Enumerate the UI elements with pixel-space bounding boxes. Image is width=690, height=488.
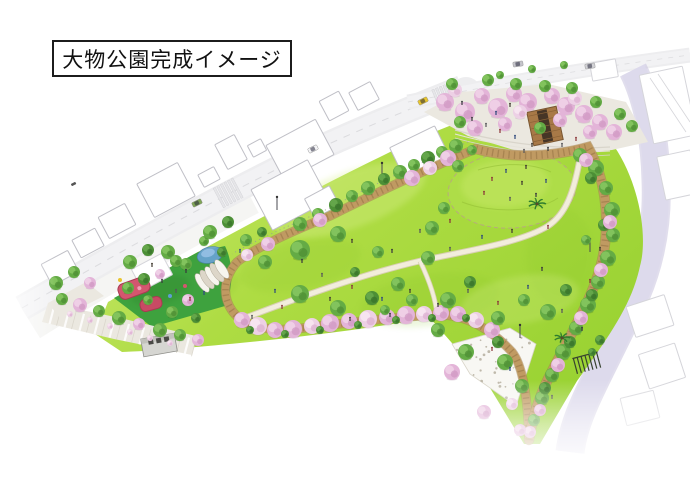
tree-crown-dark [443, 207, 448, 212]
tree-crown-dark [562, 350, 569, 357]
tree-crown-dark [274, 328, 281, 335]
tree-crown-dark [118, 317, 124, 323]
tree-crown-dark [395, 319, 399, 323]
speckle-dot [483, 353, 486, 356]
tree-crown-dark [504, 360, 511, 367]
tree-crown-dark [471, 149, 476, 154]
tree-crown-dark [261, 231, 266, 236]
tree-crown-dark [284, 333, 288, 337]
tree-crown-dark [384, 309, 389, 314]
tree-crown-dark [351, 195, 356, 200]
tree-crown-dark [569, 341, 574, 346]
tree-crown-dark [597, 281, 603, 287]
tree-crown-dark [595, 166, 602, 173]
tree-crown-dark [129, 261, 135, 267]
speckle-dot [493, 371, 496, 374]
tree-crown-dark [589, 131, 595, 137]
person-body [545, 180, 546, 183]
tree-crown-dark [551, 94, 558, 101]
tree-crown-dark [55, 282, 61, 288]
person-body [349, 318, 350, 321]
tree-crown-dark [427, 257, 433, 263]
person-body [467, 290, 468, 293]
building [349, 82, 380, 111]
tree-crown-dark [329, 321, 337, 329]
tree-crown-dark [319, 329, 323, 333]
speckle-dot [487, 350, 490, 353]
tree-crown-dark [580, 317, 586, 323]
speckle-dot [485, 346, 487, 348]
tree-crown-dark [257, 324, 265, 332]
tree-crown-dark [565, 104, 573, 112]
building [247, 139, 266, 158]
tree-crown-dark [599, 339, 604, 344]
person-body [527, 286, 528, 289]
tree-crown-dark [595, 101, 600, 106]
tree-crown-dark [367, 317, 375, 325]
tree-crown-dark [465, 317, 469, 321]
tree-crown-dark [455, 145, 461, 151]
person-body [471, 118, 472, 121]
person-body [561, 144, 562, 147]
person-body [189, 298, 190, 301]
left-fade [0, 230, 55, 400]
speckle-dot [452, 347, 453, 348]
person-body [499, 130, 500, 133]
tree-crown-dark [90, 319, 93, 322]
tree-crown-dark [475, 318, 482, 325]
speckle-dot [479, 369, 481, 371]
tree-crown-dark [487, 79, 492, 84]
person-body [521, 182, 522, 185]
tree-crown-dark [583, 112, 591, 120]
car [513, 61, 524, 67]
tree-crown-dark [299, 248, 308, 257]
person-body [509, 104, 510, 107]
tree-crown-dark [429, 167, 435, 173]
speckle-dot [473, 374, 475, 376]
tree-crown-dark [185, 263, 190, 268]
person-body [449, 220, 450, 223]
person-body [449, 248, 450, 251]
tree-crown-dark [519, 111, 525, 117]
tree-crown-dark [457, 165, 462, 170]
tree-crown-dark [465, 350, 472, 357]
person-body [351, 240, 352, 243]
tree-crown-dark [451, 370, 458, 377]
tree-crown-dark [383, 178, 388, 183]
tree-crown-dark [367, 187, 373, 193]
person-body [185, 270, 186, 273]
tree-crown-dark [147, 299, 152, 304]
person-body [511, 230, 512, 233]
tree-crown-dark [515, 83, 520, 88]
tree-crown-dark [469, 281, 474, 286]
tree-crown-dark [143, 278, 148, 283]
tree-crown-dark [585, 159, 591, 165]
person-body [491, 178, 492, 181]
tree-crown-dark [563, 64, 567, 68]
tree-crown-dark [619, 113, 624, 118]
person-body [561, 310, 562, 313]
tree-crown-dark [440, 311, 447, 318]
tree-crown-dark [605, 187, 611, 193]
tree-crown-dark [159, 329, 165, 335]
person-body [151, 264, 152, 267]
tree-crown-dark [631, 125, 636, 130]
tree-crown-dark [61, 298, 66, 303]
tree-crown-dark [267, 243, 273, 249]
person-body [481, 236, 482, 239]
person-body [509, 198, 510, 201]
tree-crown-dark [73, 271, 78, 276]
person-body [329, 298, 330, 301]
palm-trunk [536, 203, 539, 206]
tree-crown-dark [491, 328, 498, 335]
tree-crown-dark [150, 337, 153, 340]
tree-crown-dark [565, 289, 570, 294]
tree-crown-dark [497, 317, 503, 323]
tree-crown-dark [337, 232, 344, 239]
speckle-dot [495, 361, 497, 363]
person-body [161, 280, 162, 283]
tree-crown-dark [98, 310, 103, 315]
tree-crown-dark [431, 317, 435, 321]
person-body [575, 138, 576, 141]
tree-crown-dark [611, 208, 618, 215]
speckle-dot [528, 342, 531, 345]
tree-crown-dark [600, 269, 606, 275]
tree-crown-dark [431, 227, 437, 233]
person-body [535, 194, 536, 197]
person-body [351, 286, 352, 289]
speckle-dot [480, 339, 482, 341]
tree-crown-dark [130, 331, 133, 334]
tree-crown-dark [79, 304, 85, 310]
person-body [483, 192, 484, 195]
tree-crown-dark [607, 256, 614, 263]
tree-crown-dark [371, 297, 377, 303]
car-cabin [515, 62, 520, 67]
tree-crown-dark [249, 329, 253, 333]
tree-crown-dark [481, 94, 488, 101]
person-body [461, 102, 462, 105]
bottom-fade [0, 380, 690, 488]
person-body [485, 124, 486, 127]
tree-crown-dark [167, 251, 173, 257]
tree-crown-dark [547, 310, 554, 317]
tree-crown-dark [575, 327, 581, 333]
park-rendering-page: 大物公園完成イメージ [0, 0, 690, 488]
tree-crown-dark [591, 294, 596, 299]
tree-crown-dark [531, 68, 535, 72]
tree-crown-dark [197, 339, 202, 344]
speckle-dot [475, 356, 477, 358]
tree-crown-dark [411, 176, 418, 183]
tree [431, 323, 445, 337]
tree-crown-dark [591, 351, 595, 355]
title-box: 大物公園完成イメージ [52, 40, 292, 77]
tree-crown-dark [599, 120, 606, 127]
tree-crown-dark [227, 221, 232, 226]
scooter [71, 182, 77, 186]
lamp-head [519, 324, 521, 326]
tree-crown-dark [474, 126, 481, 133]
person-body [495, 112, 496, 115]
speckle-dot [458, 360, 459, 361]
tree-crown-dark [70, 313, 73, 316]
tree-crown-dark [574, 97, 580, 103]
play-item [183, 284, 187, 288]
tree-crown-dark [397, 283, 403, 289]
tree-crown-dark [613, 130, 620, 137]
tree-crown-dark [348, 319, 355, 326]
tree-crown-dark [413, 164, 418, 169]
tree-crown-dark [245, 239, 250, 244]
tree-crown-dark [170, 342, 173, 345]
person-body [419, 230, 420, 233]
tree-crown-dark [159, 273, 164, 278]
tree-crown-dark [585, 239, 590, 244]
person-body [541, 268, 542, 271]
person-body [437, 304, 438, 307]
play-item [118, 278, 122, 282]
tree-crown-dark [246, 254, 251, 259]
tree-crown-dark [587, 303, 594, 310]
tree-crown-dark [147, 249, 152, 254]
tree-crown-dark [203, 240, 208, 245]
building [319, 91, 349, 121]
tree-crown-dark [551, 374, 557, 380]
tree-crown-dark [459, 121, 464, 126]
person-body [301, 260, 302, 263]
tree-crown-dark [89, 282, 94, 287]
tree-crown-dark [557, 364, 563, 370]
tree-crown-dark [437, 329, 443, 335]
person-body [523, 150, 524, 153]
tree-crown-dark [497, 106, 506, 115]
tree-crown-dark [319, 219, 325, 225]
person-body [491, 348, 492, 351]
building [198, 167, 220, 188]
person-body [381, 298, 382, 301]
person-body [281, 306, 282, 309]
tree-crown-dark [110, 325, 113, 328]
tree-crown-dark [612, 234, 618, 240]
tree-crown-dark [127, 287, 132, 292]
speckle-dot [520, 337, 522, 339]
person-body [203, 292, 204, 295]
tree-crown-dark [299, 223, 305, 229]
tree-crown-dark [264, 261, 270, 267]
speckle-dot [456, 349, 458, 351]
speckle-dot [521, 346, 523, 348]
speckle-dot [479, 358, 482, 361]
title-text: 大物公園完成イメージ [62, 44, 282, 74]
tree-crown-dark [179, 334, 184, 339]
person-body [321, 274, 322, 277]
tree-crown-dark [411, 299, 416, 304]
person-body [175, 290, 176, 293]
building [590, 59, 619, 81]
person-body [599, 248, 600, 251]
tree-crown-dark [513, 92, 520, 99]
tree-crown-dark [377, 251, 382, 256]
person-body [497, 302, 498, 305]
person-body [581, 328, 582, 331]
person-body [391, 250, 392, 253]
speckle-dot [513, 367, 514, 368]
person-body [409, 290, 410, 293]
tree-crown-dark [609, 221, 615, 227]
tree-crown-dark [539, 127, 544, 132]
car-cabin [587, 64, 592, 69]
tree-crown-dark [299, 292, 307, 300]
tree-crown-dark [559, 119, 565, 125]
person-body [239, 250, 240, 253]
tree-crown-dark [504, 123, 510, 129]
lamp-head [276, 196, 278, 198]
tree-crown-dark [444, 100, 452, 108]
tree-crown-dark [527, 100, 535, 108]
tree-crown-dark [544, 85, 549, 90]
tree-crown-dark [209, 231, 215, 237]
person-body [389, 314, 390, 317]
play-item [168, 294, 172, 298]
lamp-head [381, 162, 383, 164]
person-body [514, 136, 515, 139]
tree-crown-dark [523, 299, 528, 304]
tree-crown-dark [451, 83, 456, 88]
tree-crown-dark [354, 271, 359, 276]
person-body [505, 170, 506, 173]
restroom-window [156, 338, 162, 344]
person-body [251, 316, 252, 319]
tree-crown-dark [175, 260, 180, 265]
person-body [547, 148, 548, 151]
tree-crown-dark [405, 313, 413, 321]
tree-crown-dark [337, 306, 344, 313]
person-body [274, 290, 275, 293]
tree-crown-dark [221, 251, 226, 256]
tree-crown-dark [357, 324, 361, 328]
tree-crown-dark [171, 311, 176, 316]
tree-crown-dark [447, 156, 454, 163]
tree-crown-dark [590, 177, 595, 182]
tree-crown-dark [571, 87, 576, 92]
tree-crown-dark [241, 318, 248, 325]
building [215, 134, 248, 169]
tree-crown-dark [497, 341, 502, 346]
palm-trunk [561, 337, 564, 340]
tree-crown-dark [447, 298, 454, 305]
person-body [531, 144, 532, 147]
tree-crown-dark [195, 317, 200, 322]
person-body [589, 280, 590, 283]
tree-crown-dark [499, 74, 503, 78]
tree-crown-dark [292, 327, 300, 335]
speckle-dot [495, 367, 497, 369]
cherry-tree [444, 364, 460, 381]
person-body [547, 226, 548, 229]
tree-crown-dark [138, 323, 143, 328]
tree-crown-dark [335, 204, 341, 210]
person-body [525, 166, 526, 169]
person-body [509, 368, 510, 371]
